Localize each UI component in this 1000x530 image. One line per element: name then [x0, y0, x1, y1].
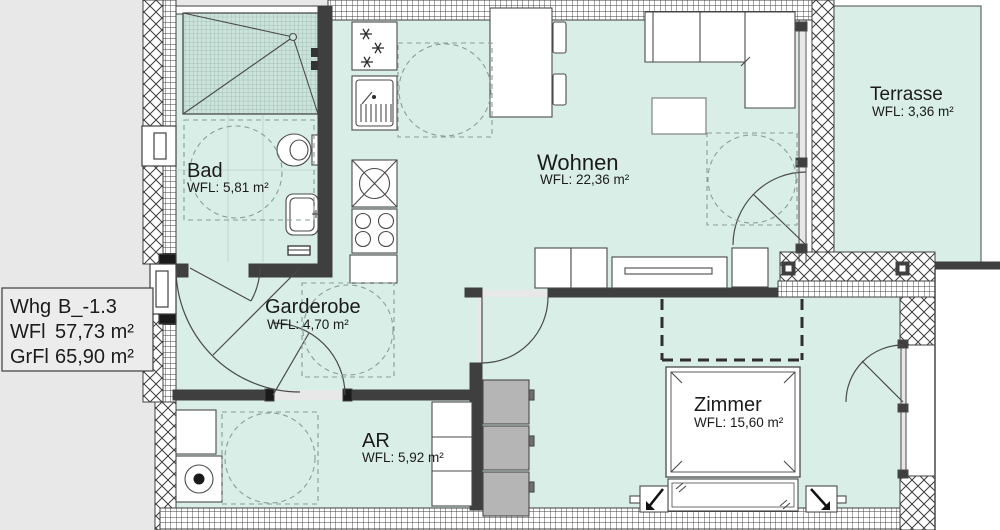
wall-terrasse-bottom [780, 252, 935, 282]
bad-area: WFL: 5,81 m² [187, 180, 269, 195]
grfl-label: GrFl [10, 346, 49, 368]
washbasin [286, 194, 320, 235]
bad-window [142, 126, 176, 166]
wall-stub-right [935, 262, 1000, 269]
floorplan-drawing: Bad WFL: 5,81 m² Wohnen WFL: 22,36 m² Te… [0, 0, 1000, 530]
shower [183, 13, 318, 114]
shower-fitting-icon [311, 48, 318, 57]
wohnen-area: WFL: 22,36 m² [540, 172, 630, 187]
toilet [277, 134, 318, 166]
double-bed [666, 367, 800, 511]
wall-bad-south-jamb [175, 264, 188, 277]
entrance-door-frame [150, 254, 176, 324]
garderobe-label: Garderobe [265, 296, 361, 318]
wall-wohnen-zimmer-2 [548, 288, 778, 297]
bad-label: Bad [187, 160, 223, 182]
wall-bad-east [318, 6, 332, 277]
pier-right-bottom [900, 476, 935, 530]
kitchen-oven [352, 160, 397, 207]
tv-lowboard [612, 257, 727, 288]
wfl-label: WFl [10, 321, 46, 343]
zimmer-area: WFL: 15,60 m² [694, 415, 784, 430]
floorplan-canvas: Bad WFL: 5,81 m² Wohnen WFL: 22,36 m² Te… [0, 0, 1000, 530]
bathroom-radiator [288, 246, 310, 255]
wfl-value: 57,73 m² [55, 321, 134, 343]
kitchen-sink [352, 76, 397, 130]
terrasse-floor [830, 6, 981, 262]
kitchen-base-cabinet [350, 255, 397, 283]
unit-value: B_-1.3 [58, 296, 117, 318]
unit-label: Whg [10, 296, 51, 318]
zimmer-label: Zimmer [694, 394, 762, 416]
terrasse-area: WFL: 3,36 m² [872, 104, 954, 119]
grfl-value: 65,90 m² [55, 346, 134, 368]
wall-under-terrasse [778, 281, 935, 297]
ar-area: WFL: 5,92 m² [362, 450, 444, 465]
garderobe-area: WFL: 4,70 m² [267, 317, 349, 332]
unit-info-box: Whg B_-1.3 WFl 57,73 m² GrFl 65,90 m² [2, 288, 153, 371]
wall-wohnen-zimmer-1 [465, 288, 482, 297]
chair [553, 74, 566, 105]
wall-garderobe-ar-1 [173, 390, 273, 400]
kitchen-freezer [352, 22, 397, 70]
terrasse-label: Terrasse [870, 84, 943, 105]
ar-label: AR [362, 430, 390, 452]
wardrobe [483, 380, 534, 516]
wall-garderobe-ar-2 [343, 390, 478, 400]
wall-terrasse-left [812, 0, 834, 260]
chair [553, 22, 566, 53]
coffee-table [652, 98, 706, 134]
washing-machine [176, 456, 222, 502]
kitchen-cooktop [352, 209, 397, 253]
pier-right-top [900, 297, 935, 345]
storage-cabinet [176, 410, 216, 454]
